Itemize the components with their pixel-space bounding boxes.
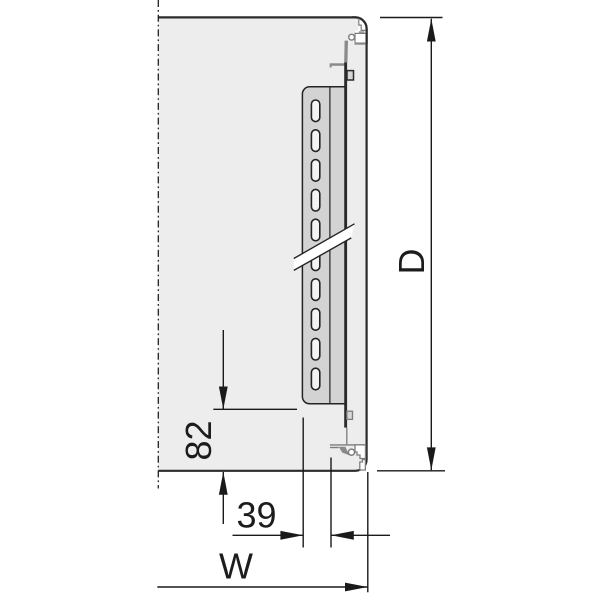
svg-text:39: 39 (236, 495, 276, 536)
svg-text:W: W (219, 546, 253, 587)
svg-text:D: D (391, 249, 432, 275)
svg-text:82: 82 (178, 420, 219, 460)
